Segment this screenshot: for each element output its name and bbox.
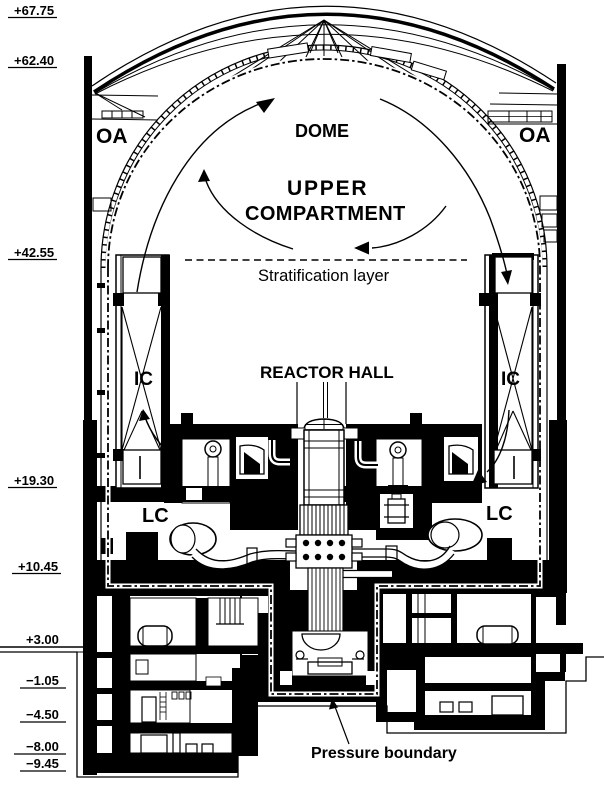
svg-text:+67.75: +67.75 [14,3,54,18]
svg-text:Stratification layer: Stratification layer [258,267,390,285]
svg-text:OA: OA [96,125,128,148]
svg-text:OA: OA [519,124,551,147]
svg-text:+3.00: +3.00 [26,632,59,647]
svg-text:+19.30: +19.30 [14,473,54,488]
svg-text:−9.45: −9.45 [26,756,59,771]
svg-text:+42.55: +42.55 [14,245,54,260]
svg-text:LC: LC [142,505,169,527]
svg-text:−8.00: −8.00 [26,739,59,754]
svg-text:REACTOR HALL: REACTOR HALL [260,363,394,382]
svg-text:Pressure boundary: Pressure boundary [311,745,457,762]
svg-text:IC: IC [501,369,520,390]
svg-text:DOME: DOME [295,121,349,141]
svg-text:UPPER: UPPER [287,177,368,200]
svg-text:+10.45: +10.45 [18,559,58,574]
svg-text:COMPARTMENT: COMPARTMENT [245,203,406,225]
svg-text:LC: LC [486,503,513,525]
svg-text:IC: IC [134,369,153,390]
svg-text:−4.50: −4.50 [26,707,59,722]
svg-text:+62.40: +62.40 [14,53,54,68]
svg-text:−1.05: −1.05 [26,673,59,688]
